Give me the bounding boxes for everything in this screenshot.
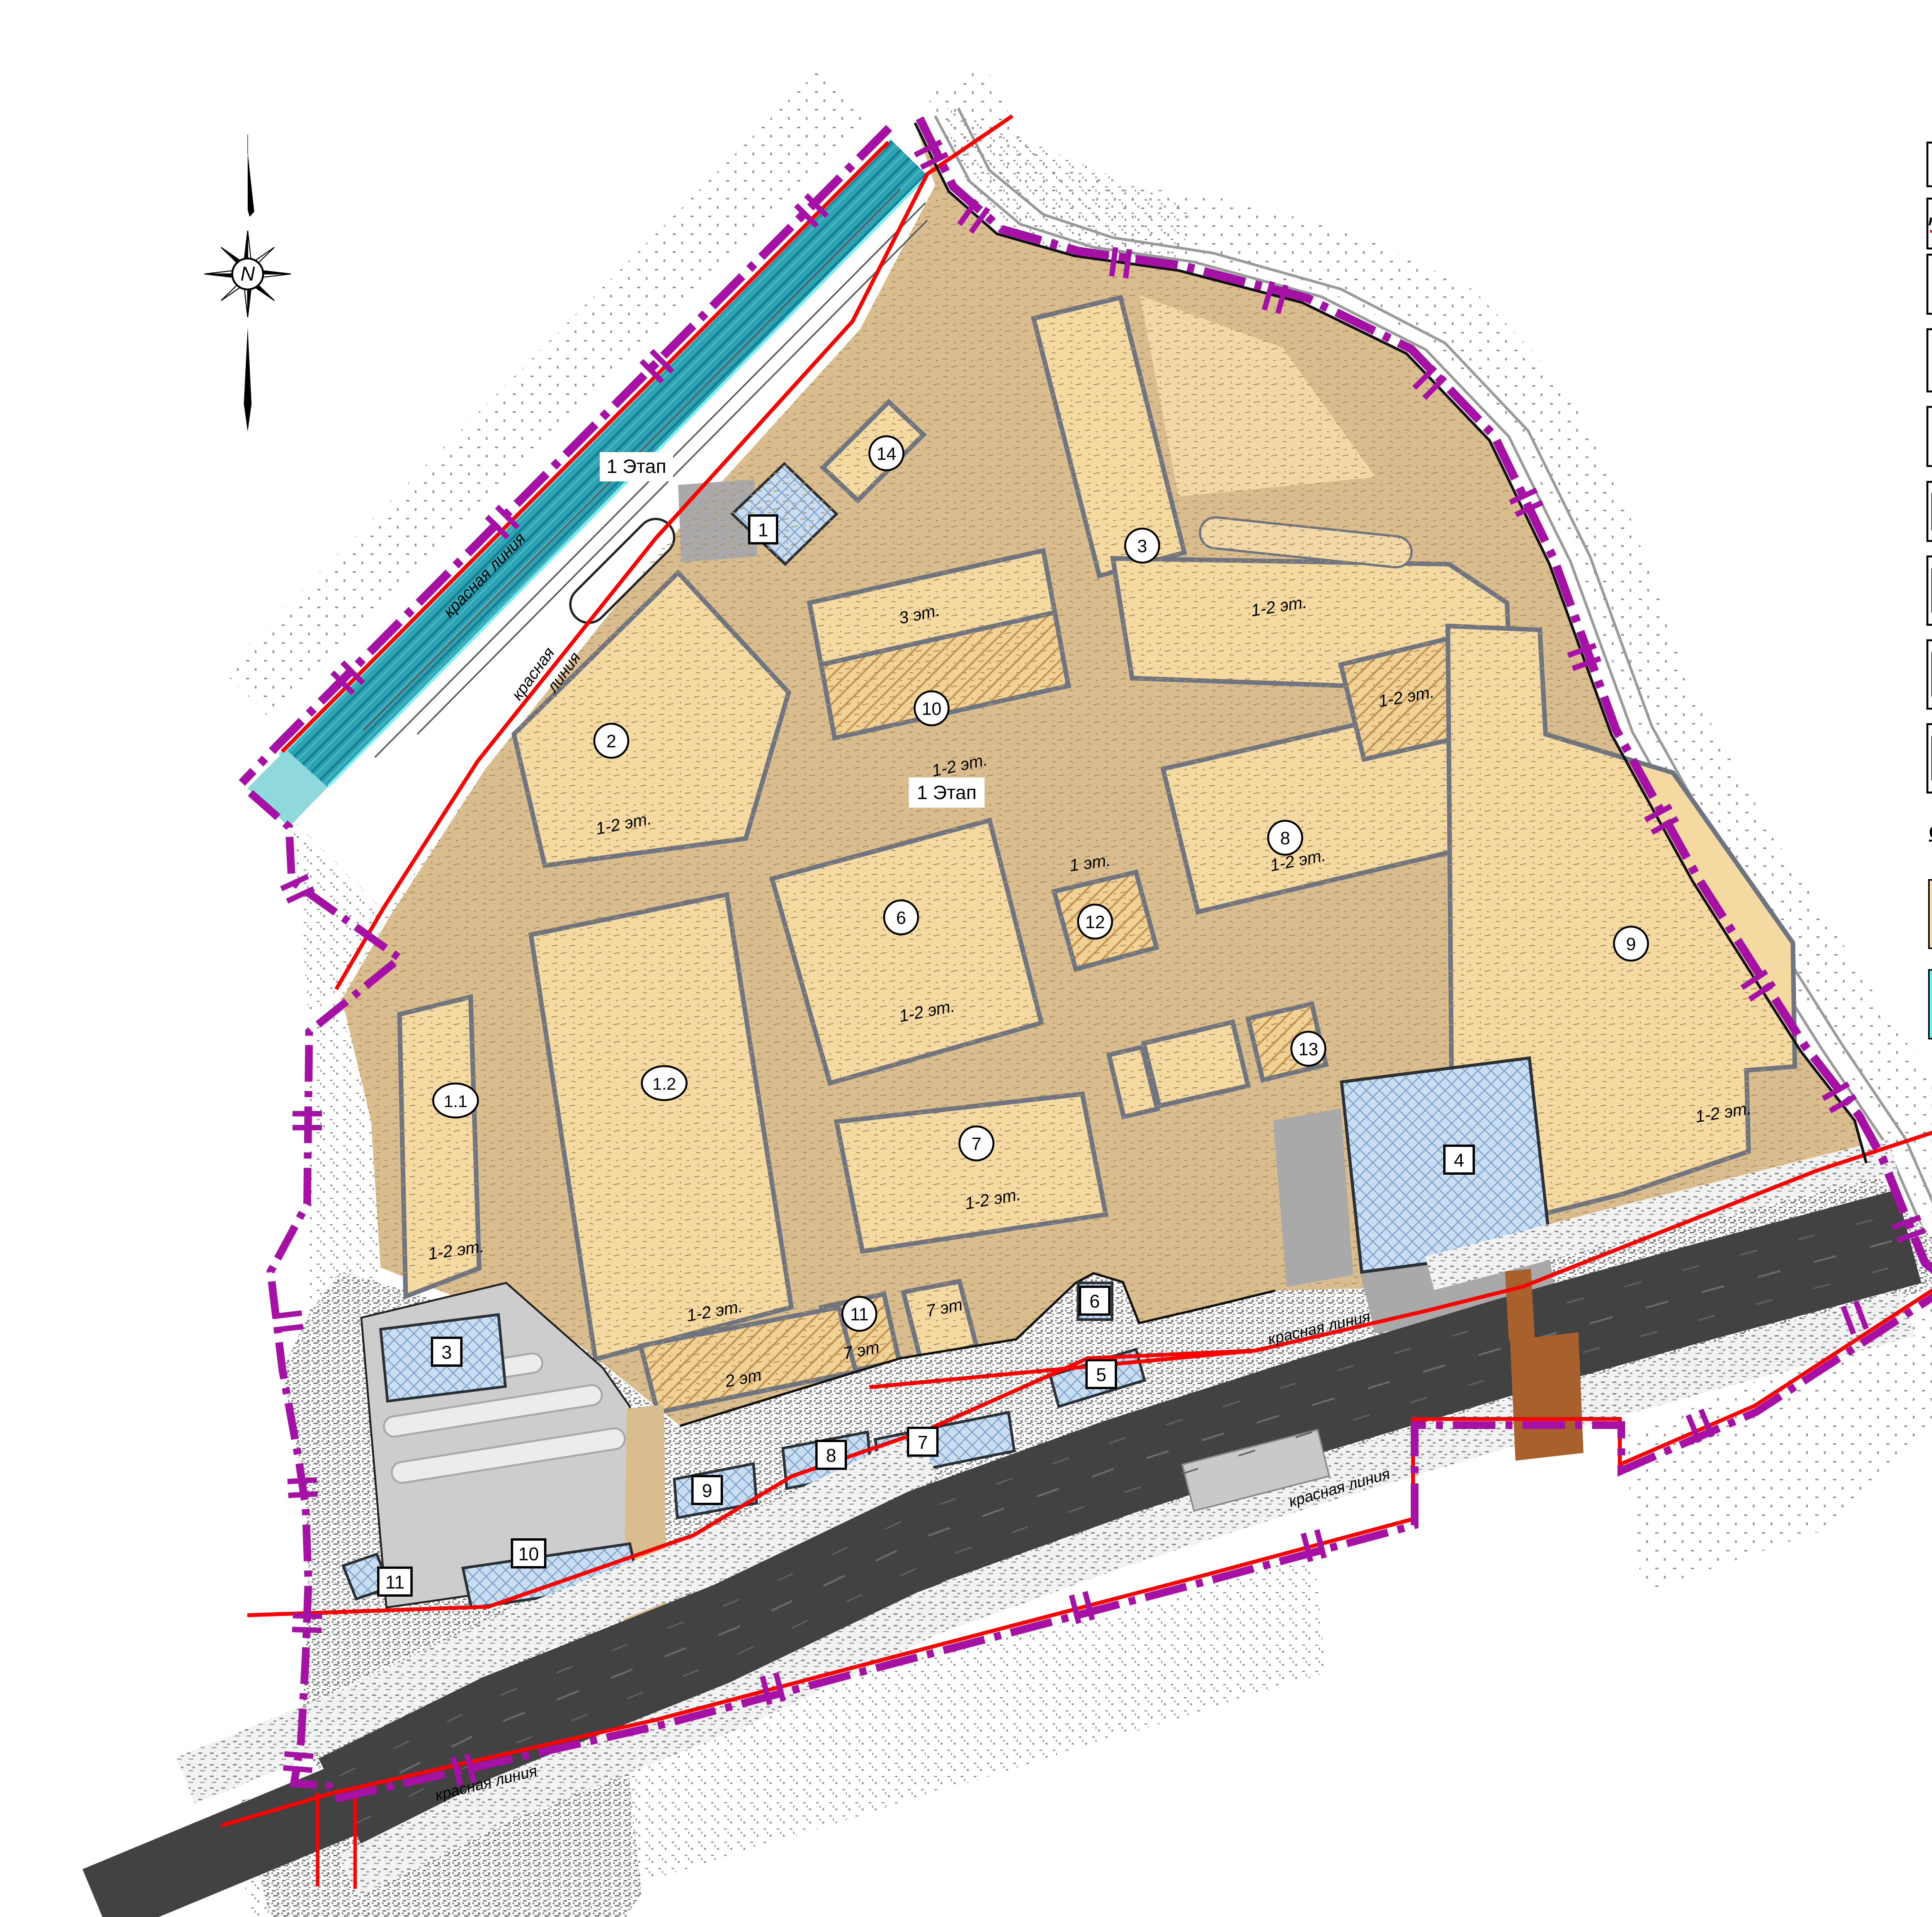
svg-text:4: 4 (1454, 1150, 1464, 1171)
svg-text:9: 9 (702, 1481, 713, 1501)
svg-text:12: 12 (1085, 912, 1105, 932)
svg-text:6: 6 (1090, 1291, 1100, 1312)
svg-text:14: 14 (876, 444, 896, 464)
svg-text:1: 1 (758, 520, 769, 541)
svg-text:8: 8 (1280, 828, 1290, 848)
svg-text:1 Этап: 1 Этап (917, 782, 977, 803)
svg-text:1 Этап: 1 Этап (607, 456, 667, 477)
svg-text:7: 7 (971, 1134, 981, 1154)
svg-text:10: 10 (922, 699, 941, 719)
svg-text:11: 11 (850, 1304, 869, 1324)
svg-text:красная линия: красная линия (1928, 213, 1932, 229)
svg-text:2: 2 (606, 731, 616, 751)
svg-text:1.2: 1.2 (652, 1075, 676, 1094)
svg-text:11: 11 (385, 1572, 405, 1593)
svg-text:7: 7 (918, 1432, 928, 1453)
svg-text:ОЧЕРЁДНОСТЬ:: ОЧЕРЁДНОСТЬ: (1929, 822, 1932, 843)
svg-text:1.1: 1.1 (444, 1092, 467, 1111)
svg-text:5: 5 (1096, 1365, 1107, 1385)
svg-text:9: 9 (1626, 934, 1636, 954)
svg-text:N: N (240, 263, 255, 285)
svg-text:3: 3 (1137, 536, 1147, 556)
svg-text:6: 6 (896, 908, 906, 928)
svg-text:3: 3 (442, 1342, 452, 1363)
svg-text:10: 10 (518, 1544, 539, 1565)
svg-text:8: 8 (826, 1446, 837, 1466)
svg-text:13: 13 (1298, 1039, 1318, 1059)
